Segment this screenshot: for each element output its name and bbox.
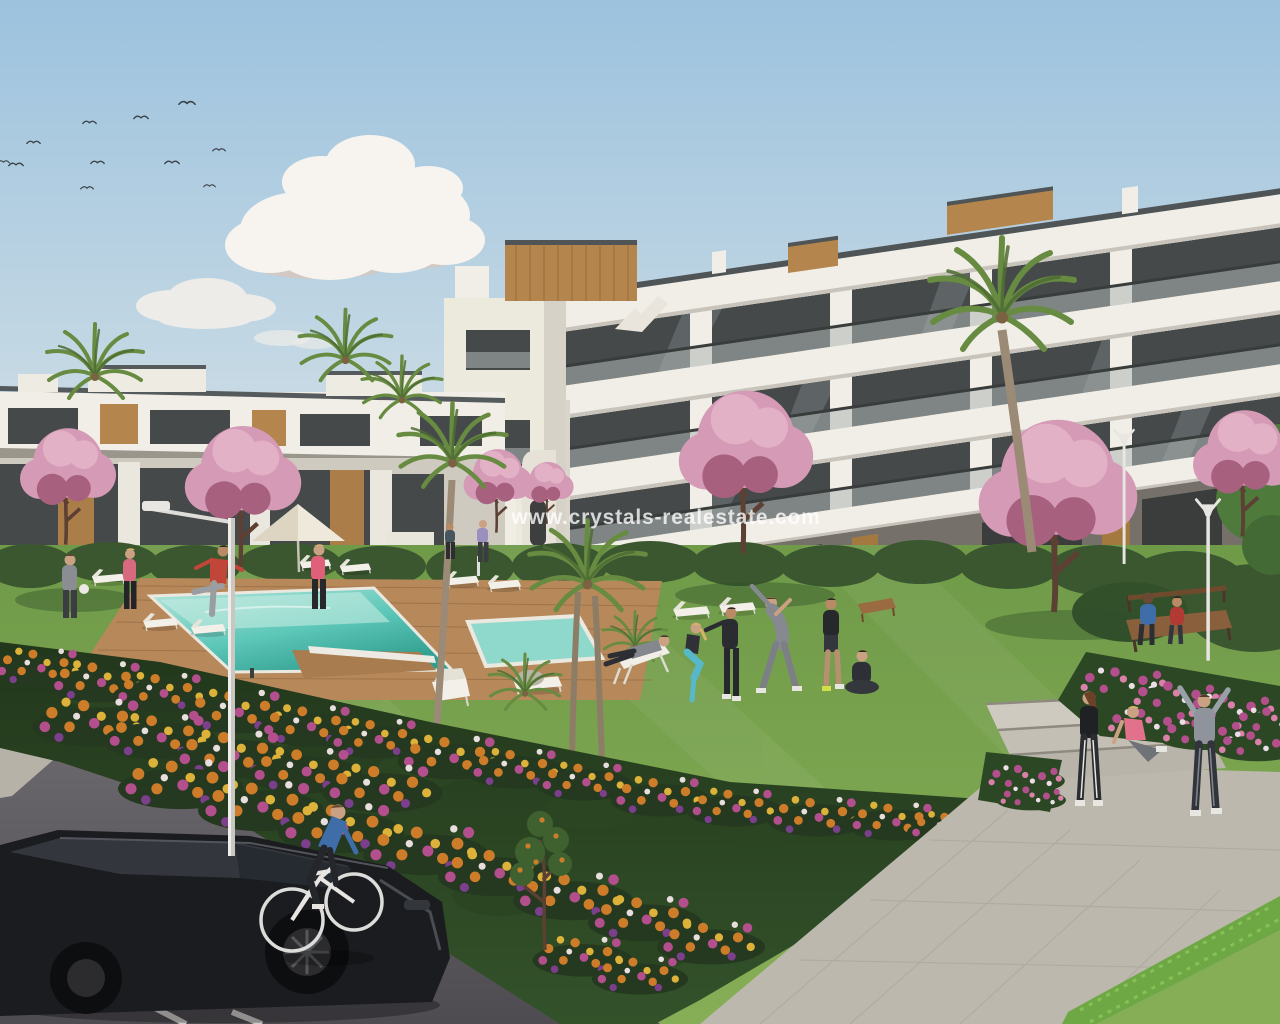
property-render-image: www.crystals-realestate.com (0, 0, 1280, 1024)
watermark-text: www.crystals-realestate.com (510, 506, 820, 529)
spa-pool (468, 616, 602, 666)
render-canvas: www.crystals-realestate.com (0, 0, 1280, 1024)
